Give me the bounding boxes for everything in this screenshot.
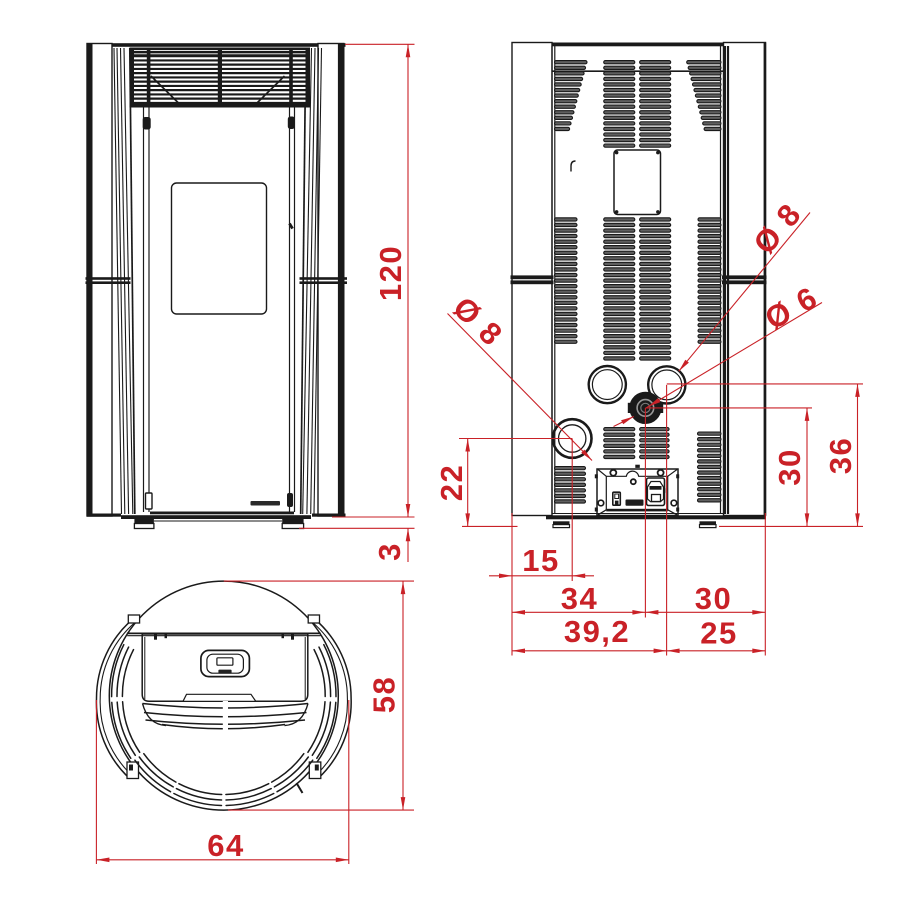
svg-text:30: 30 [772,448,807,485]
svg-text:36: 36 [823,437,858,474]
svg-text:34: 34 [561,581,598,616]
svg-text:3: 3 [372,542,407,561]
svg-text:39,2: 39,2 [564,614,630,649]
svg-text:22: 22 [434,464,469,501]
svg-text:58: 58 [367,676,402,713]
svg-text:64: 64 [207,828,244,863]
svg-text:120: 120 [373,245,408,301]
svg-text:15: 15 [522,543,559,578]
svg-text:30: 30 [695,581,732,616]
svg-text:25: 25 [700,616,737,651]
